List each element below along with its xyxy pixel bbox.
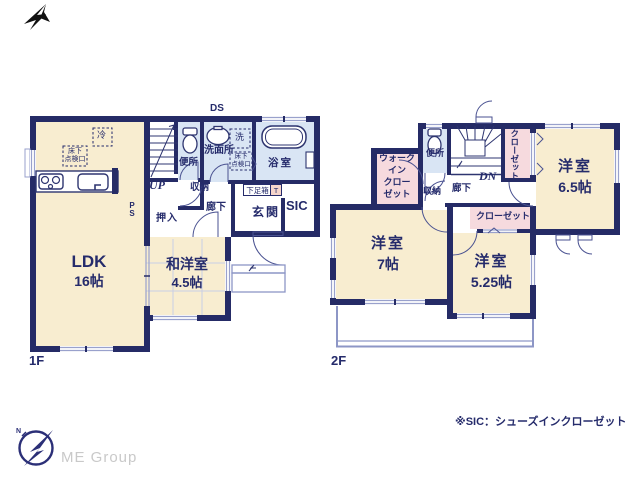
storage-label-2f: 収納 — [423, 186, 441, 196]
me-group-logo-icon — [20, 430, 54, 466]
stairs-dn-label: DN — [479, 170, 496, 184]
toilet-label-1f: 便所 — [179, 158, 198, 169]
washitsu-name-label: 和洋室 — [152, 256, 222, 272]
room7-size-label: 7帖 — [356, 256, 420, 272]
entrance-door-arc — [253, 235, 283, 265]
shoebox-label: 下足箱 — [243, 184, 272, 196]
floor-hatch2-label: 床下 点検口 — [230, 153, 252, 169]
floorplan-drawing — [0, 0, 640, 480]
room65-door-arc — [509, 182, 533, 206]
room525-name-label: 洋室 — [453, 253, 530, 270]
fridge-label: 冷 — [97, 130, 106, 140]
wic-label: ウォーク イン クロー ゼット — [374, 152, 420, 201]
washer-label: 洗 — [235, 132, 244, 142]
counter-end-wall — [112, 168, 118, 194]
hallway-label-1f: 廊下 — [206, 202, 226, 214]
north-compass-icon — [24, 4, 50, 30]
logo-north-letter: N — [16, 428, 21, 436]
toilet-icon-1f — [183, 128, 197, 153]
shoebox-t-label: T — [270, 184, 282, 196]
stairs-2f — [451, 126, 501, 175]
room65-name-label: 洋室 — [536, 158, 614, 175]
washbasin-icon — [207, 127, 229, 145]
room525-size-label: 5.25帖 — [453, 274, 530, 290]
closet-label-right: クローゼット — [509, 129, 519, 181]
ldk-name-label: LDK — [58, 252, 120, 272]
closet-label-mid: クローゼット — [476, 211, 530, 221]
floor2-label: 2F — [331, 354, 346, 369]
sink-icon — [78, 174, 108, 190]
room7-name-label: 洋室 — [356, 235, 420, 252]
oshiire-label: 押入 — [156, 213, 178, 225]
entrance-label: 玄関 — [252, 206, 280, 220]
floor-hatch-label: 床下 点検口 — [63, 148, 87, 165]
storage-label-1f: 収納 — [190, 183, 209, 194]
floor1-label: 1F — [29, 354, 44, 369]
washitsu-size-label: 4.5帖 — [152, 276, 222, 291]
pipe-space-label: P S — [127, 202, 137, 219]
logo-text: ME Group — [61, 449, 137, 466]
sic-label: SIC — [286, 199, 308, 214]
washitsu-door-arc — [193, 212, 218, 237]
bath-label: 浴室 — [268, 157, 293, 169]
sic-note: ※SIC：シューズインクローゼット — [455, 413, 626, 429]
floorplan-canvas: DS 冷 床下 点検口 便所 洗面所 洗 床下 点検口 浴室 UP 収納 廊下 … — [0, 0, 640, 480]
duct-space-label: DS — [210, 103, 224, 115]
room65-size-label: 6.5帖 — [536, 179, 614, 195]
toilet-label-2f: 便所 — [426, 148, 444, 158]
entrance-porch-steps — [232, 265, 285, 292]
stairs-up-label: UP — [149, 179, 165, 193]
hallway-label-2f: 廊下 — [452, 184, 471, 195]
ldk-size-label: 16帖 — [58, 273, 120, 289]
